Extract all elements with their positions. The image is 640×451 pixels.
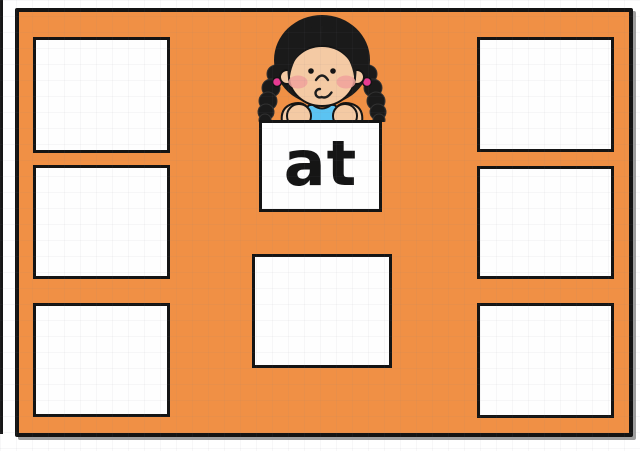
scene-edge-line (0, 0, 3, 434)
cheek-left (289, 76, 308, 89)
drop-zone-left-top[interactable] (33, 37, 170, 153)
drop-zone-center-bottom[interactable] (252, 254, 392, 368)
drop-zone-right-middle[interactable] (477, 166, 614, 279)
drop-zone-right-bottom[interactable] (477, 303, 614, 418)
cheek-right (337, 76, 356, 89)
hair-part-line (321, 27, 322, 44)
drop-zone-left-middle[interactable] (33, 165, 170, 279)
girl-character-icon (252, 10, 392, 122)
activity-scene: at (0, 0, 640, 451)
eye-right (330, 68, 336, 74)
word-card: at (259, 120, 382, 212)
drop-zone-left-bottom[interactable] (33, 303, 170, 417)
word-card-label: at (284, 133, 357, 199)
drop-zone-right-top[interactable] (477, 37, 614, 152)
eye-left (308, 68, 314, 74)
